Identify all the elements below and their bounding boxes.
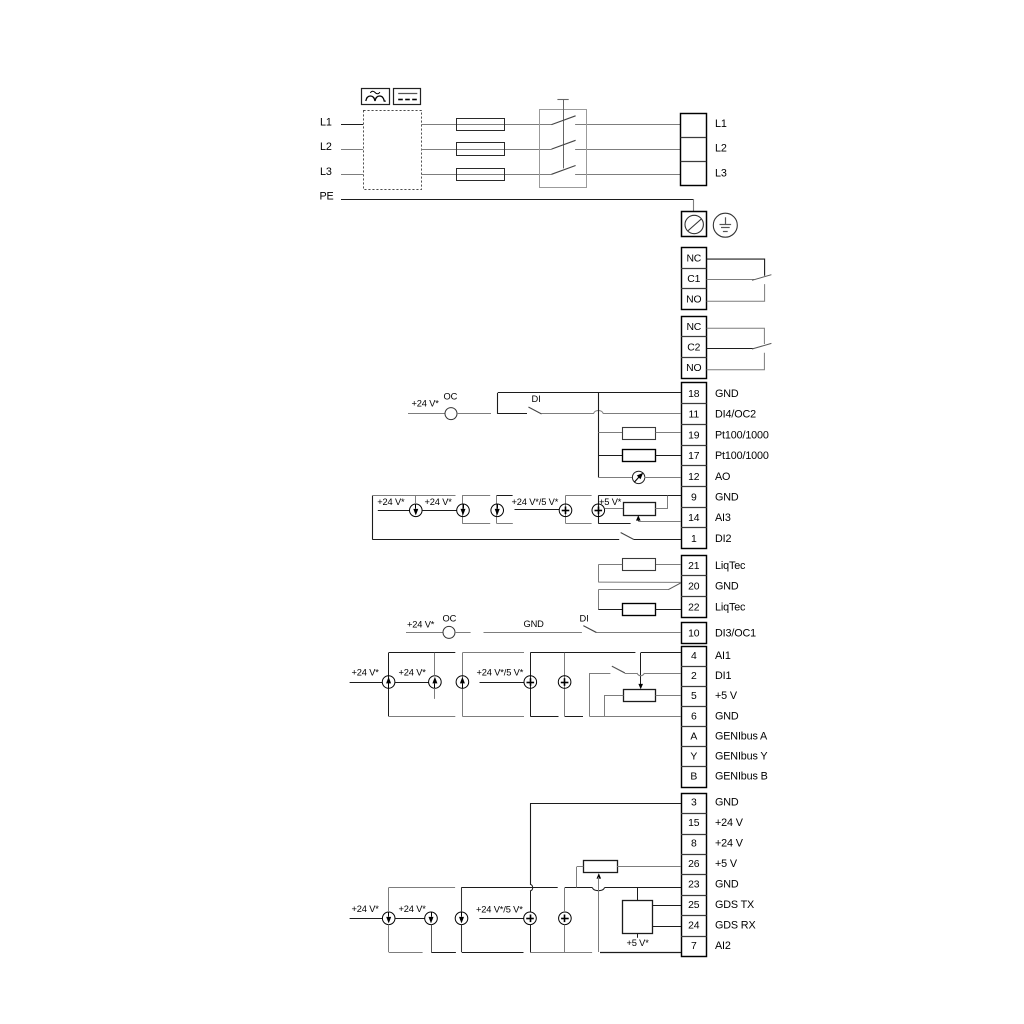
svg-text:+24 V: +24 V bbox=[715, 838, 744, 850]
svg-text:15: 15 bbox=[688, 818, 700, 829]
svg-text:L2: L2 bbox=[715, 142, 727, 154]
svg-text:+5 V: +5 V bbox=[715, 690, 738, 702]
svg-text:+24 V*: +24 V* bbox=[352, 904, 380, 914]
svg-text:AI2: AI2 bbox=[715, 940, 731, 952]
svg-text:GND: GND bbox=[715, 388, 739, 400]
svg-text:+24 V*/5 V*: +24 V*/5 V* bbox=[476, 905, 523, 915]
svg-text:AI3: AI3 bbox=[715, 512, 731, 524]
svg-text:10: 10 bbox=[688, 628, 700, 639]
svg-text:+24 V*: +24 V* bbox=[399, 904, 427, 914]
svg-text:3: 3 bbox=[691, 798, 697, 809]
svg-text:DI: DI bbox=[580, 614, 589, 624]
svg-text:NO: NO bbox=[686, 363, 701, 374]
svg-text:AO: AO bbox=[715, 471, 730, 483]
svg-text:+5 V: +5 V bbox=[715, 858, 738, 870]
svg-text:23: 23 bbox=[688, 880, 700, 891]
svg-text:NC: NC bbox=[686, 322, 701, 333]
svg-text:+24 V*: +24 V* bbox=[425, 497, 453, 507]
svg-text:+24 V*: +24 V* bbox=[377, 497, 405, 507]
svg-text:GND: GND bbox=[715, 491, 739, 503]
svg-text:20: 20 bbox=[688, 582, 700, 593]
svg-text:GND: GND bbox=[524, 619, 545, 629]
svg-text:+24 V*/5 V*: +24 V*/5 V* bbox=[477, 667, 524, 677]
svg-text:GENIbus A: GENIbus A bbox=[715, 730, 768, 742]
svg-text:GDS RX: GDS RX bbox=[715, 919, 756, 931]
svg-text:+24 V*: +24 V* bbox=[407, 620, 435, 630]
svg-text:+24 V*: +24 V* bbox=[412, 398, 440, 408]
svg-text:4: 4 bbox=[691, 651, 697, 662]
svg-text:NO: NO bbox=[686, 294, 701, 305]
svg-text:LiqTec: LiqTec bbox=[715, 601, 746, 613]
svg-text:2: 2 bbox=[691, 671, 697, 682]
svg-text:DI1: DI1 bbox=[715, 670, 731, 682]
svg-text:DI4/OC2: DI4/OC2 bbox=[715, 409, 756, 421]
svg-text:PE: PE bbox=[320, 191, 334, 203]
svg-text:L2: L2 bbox=[320, 141, 332, 153]
svg-text:L1: L1 bbox=[320, 116, 332, 128]
svg-text:8: 8 bbox=[691, 839, 697, 850]
svg-text:9: 9 bbox=[691, 492, 697, 503]
svg-text:+24 V*/5 V*: +24 V*/5 V* bbox=[512, 497, 559, 507]
svg-text:19: 19 bbox=[688, 430, 700, 441]
svg-text:GND: GND bbox=[715, 797, 739, 809]
svg-text:6: 6 bbox=[691, 711, 697, 722]
svg-text:18: 18 bbox=[688, 389, 700, 400]
svg-text:DI2: DI2 bbox=[715, 533, 731, 545]
svg-text:L3: L3 bbox=[320, 166, 332, 178]
svg-text:GENIbus B: GENIbus B bbox=[715, 771, 768, 783]
svg-text:24: 24 bbox=[688, 920, 700, 931]
svg-text:GND: GND bbox=[715, 581, 739, 593]
svg-text:25: 25 bbox=[688, 900, 700, 911]
svg-text:Pt100/1000: Pt100/1000 bbox=[715, 429, 769, 441]
svg-text:LiqTec: LiqTec bbox=[715, 560, 746, 572]
svg-text:GND: GND bbox=[715, 879, 739, 891]
svg-text:+24 V*: +24 V* bbox=[399, 667, 427, 677]
svg-text:NC: NC bbox=[686, 253, 701, 264]
svg-text:L3: L3 bbox=[715, 168, 727, 180]
svg-text:22: 22 bbox=[688, 602, 700, 613]
svg-text:26: 26 bbox=[688, 859, 700, 870]
svg-text:DI: DI bbox=[532, 394, 541, 404]
svg-text:GND: GND bbox=[715, 710, 739, 722]
svg-text:21: 21 bbox=[688, 561, 700, 572]
svg-text:L1: L1 bbox=[715, 118, 727, 130]
svg-text:+5 V*: +5 V* bbox=[626, 938, 649, 948]
svg-text:7: 7 bbox=[691, 941, 697, 952]
svg-text:C2: C2 bbox=[687, 342, 700, 353]
svg-text:Y: Y bbox=[690, 751, 697, 762]
svg-text:+24 V: +24 V bbox=[715, 817, 744, 829]
svg-text:+5 V*: +5 V* bbox=[599, 497, 622, 507]
svg-text:OC: OC bbox=[444, 392, 458, 402]
svg-text:AI1: AI1 bbox=[715, 650, 731, 662]
svg-text:GENIbus Y: GENIbus Y bbox=[715, 750, 767, 762]
svg-text:A: A bbox=[690, 731, 697, 742]
svg-text:17: 17 bbox=[688, 451, 700, 462]
svg-text:5: 5 bbox=[691, 691, 697, 702]
svg-text:OC: OC bbox=[443, 613, 457, 623]
svg-text:Pt100/1000: Pt100/1000 bbox=[715, 450, 769, 462]
svg-text:12: 12 bbox=[688, 472, 700, 483]
svg-text:11: 11 bbox=[689, 410, 700, 421]
svg-text:14: 14 bbox=[688, 513, 700, 524]
svg-text:GDS TX: GDS TX bbox=[715, 899, 754, 911]
svg-text:DI3/OC1: DI3/OC1 bbox=[715, 627, 756, 639]
svg-text:B: B bbox=[690, 772, 697, 783]
svg-text:C1: C1 bbox=[687, 274, 700, 285]
svg-text:1: 1 bbox=[691, 534, 697, 545]
svg-text:+24 V*: +24 V* bbox=[352, 667, 380, 677]
